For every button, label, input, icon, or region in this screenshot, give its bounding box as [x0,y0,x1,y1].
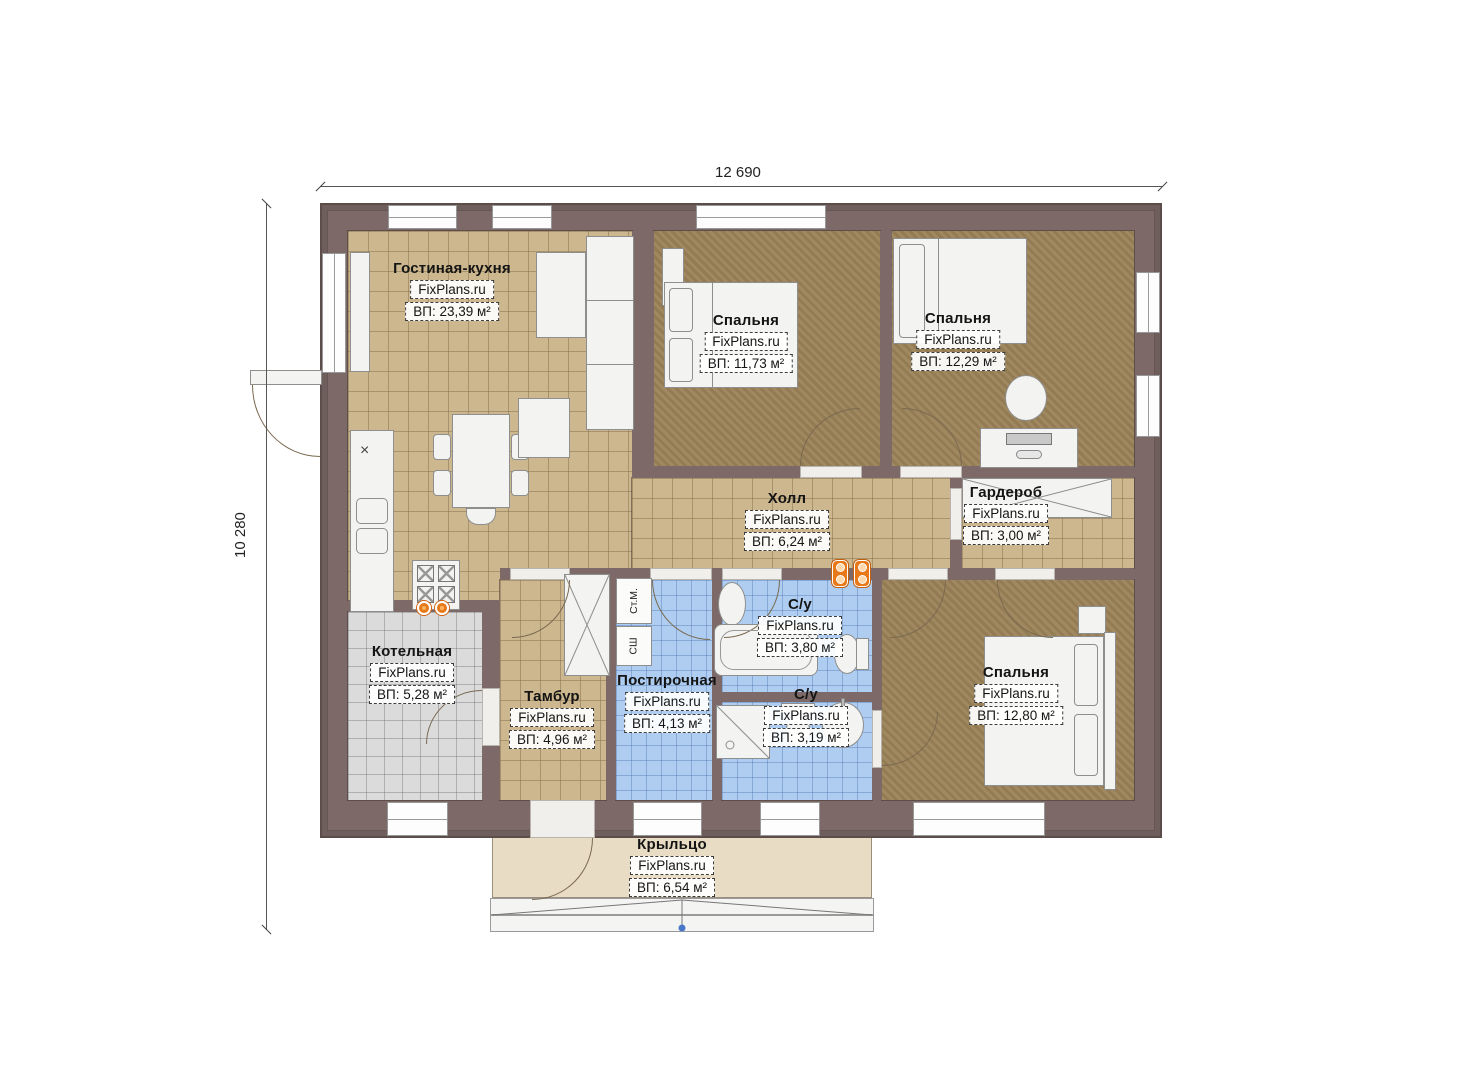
sofa-cushion-line [587,364,633,365]
window [387,802,448,836]
dimension-line-left [266,203,267,930]
drying-cabinet: СШ [616,626,652,666]
watermark: FixPlans.ru [916,330,1000,349]
wall [872,768,882,800]
room-area: ВП: 23,39 м² [405,302,499,321]
window [1136,272,1160,333]
room-name: Крыльцо [637,836,707,853]
burner-indicator [417,601,431,615]
dining-chair [433,434,451,460]
wall [948,568,995,580]
pillow [1074,644,1098,706]
label-bath1: С/у FixPlans.ru ВП: 3,80 м² [757,596,843,657]
window [322,253,346,373]
door-threshold [950,488,962,540]
window [388,205,457,229]
door-threshold [650,568,712,580]
watermark: FixPlans.ru [370,663,454,682]
wall [950,478,962,488]
porch-ramp-lines [490,898,874,934]
dimension-line-top [320,186,1162,187]
window [696,205,826,229]
room-area: ВП: 5,28 м² [369,685,455,704]
wall [872,580,882,710]
watermark: FixPlans.ru [625,692,709,711]
coffee-table [518,398,570,458]
room-area: ВП: 3,80 м² [757,638,843,657]
dining-chair [433,470,451,496]
watermark: FixPlans.ru [974,684,1058,703]
door-threshold [800,466,862,478]
room-name: Холл [768,490,806,507]
room-area: ВП: 6,54 м² [629,878,715,897]
room-area: ВП: 12,29 м² [911,352,1005,371]
watermark: FixPlans.ru [758,616,842,635]
room-name: Гостиная-кухня [393,260,511,277]
wall [862,466,900,478]
wall [500,568,510,580]
watermark: FixPlans.ru [510,708,594,727]
chair [1005,375,1047,421]
dimension-width-label: 12 690 [715,164,761,181]
washing-machine: Ст.М. [616,578,652,624]
closet [564,574,610,676]
room-area: ВП: 12,80 м² [969,706,1063,725]
door-threshold [995,568,1055,580]
label-hall: Холл FixPlans.ru ВП: 6,24 м² [744,490,830,551]
window [633,802,702,836]
label-bath2: С/у FixPlans.ru ВП: 3,19 м² [763,686,849,747]
wall [1055,568,1134,580]
wall [880,231,892,466]
watermark: FixPlans.ru [630,856,714,875]
tv-unit [350,252,370,372]
dining-chair [511,470,529,496]
room-name: Постирочная [617,672,717,689]
label-laundry: Постирочная FixPlans.ru ВП: 4,13 м² [617,672,717,733]
door-threshold [722,568,782,580]
label-bedroom3: Спальня FixPlans.ru ВП: 12,80 м² [969,664,1063,725]
burner-indicator [435,601,449,615]
label-porch: Крыльцо FixPlans.ru ВП: 6,54 м² [629,836,715,897]
room-name: Тамбур [524,688,580,705]
nightstand [1078,606,1106,634]
room-area: ВП: 3,00 м² [963,526,1049,545]
floor-plan: 12 690 10 280 [0,0,1474,1080]
wall-heater [854,560,870,587]
wall [482,746,500,800]
mouse [1016,450,1042,459]
door-threshold [482,688,500,746]
label-boiler: Котельная FixPlans.ru ВП: 5,28 м² [369,643,455,704]
wall [950,540,962,568]
drying-cabinet-label: СШ [628,637,640,654]
dimension-height-label: 10 280 [232,512,249,558]
label-living-kitchen: Гостиная-кухня FixPlans.ru ВП: 23,39 м² [393,260,511,321]
keyboard [1006,433,1052,445]
hob-mark: × [360,442,369,460]
window [1136,375,1160,437]
room-name: Спальня [983,664,1049,681]
door-threshold [510,568,570,580]
door-arc-living-exterior [252,385,320,457]
window [492,205,552,229]
room-name: Котельная [372,643,452,660]
kitchen-sink-bowl [356,498,388,524]
dining-table [452,414,510,508]
toilet-tank [856,638,869,670]
label-tambour: Тамбур FixPlans.ru ВП: 4,96 м² [509,688,595,749]
room-name: Спальня [713,312,779,329]
wall [654,466,800,478]
shower [716,705,770,759]
entry-point-dot [679,925,686,932]
sofa-cushion-line [587,300,633,301]
room-name: С/у [794,686,818,703]
watermark: FixPlans.ru [764,706,848,725]
label-wardrobe: Гардероб FixPlans.ru ВП: 3,00 м² [963,484,1049,545]
wall [712,568,722,580]
watermark: FixPlans.ru [964,504,1048,523]
pillow [1074,714,1098,776]
label-bedroom2: Спальня FixPlans.ru ВП: 12,29 м² [911,310,1005,371]
exterior-door-threshold [530,800,595,838]
pillow [669,288,693,332]
door-threshold [872,710,882,768]
room-name: Спальня [925,310,991,327]
room-area: ВП: 4,13 м² [624,714,710,733]
stove-burner [438,565,455,582]
door-threshold [900,466,962,478]
door-threshold [888,568,948,580]
wall [482,612,500,688]
wall [632,231,654,478]
sofa [586,236,634,430]
watermark: FixPlans.ru [704,332,788,351]
wall-heater [832,560,848,587]
watermark: FixPlans.ru [410,280,494,299]
pillow [669,338,693,382]
armchair [536,252,586,338]
bed-headboard [1104,632,1116,790]
kitchen-sink-bowl [356,528,388,554]
washing-machine-label: Ст.М. [628,588,640,614]
room-area: ВП: 4,96 м² [509,730,595,749]
room-name: Гардероб [970,484,1043,501]
label-bedroom1: Спальня FixPlans.ru ВП: 11,73 м² [700,312,793,373]
stove-burner [417,565,434,582]
room-area: ВП: 11,73 м² [700,354,793,373]
room-area: ВП: 3,19 м² [763,728,849,747]
watermark: FixPlans.ru [745,510,829,529]
room-name: С/у [788,596,812,613]
room-area: ВП: 6,24 м² [744,532,830,551]
window [760,802,820,836]
window [913,802,1045,836]
exterior-door-leaf [250,370,322,385]
